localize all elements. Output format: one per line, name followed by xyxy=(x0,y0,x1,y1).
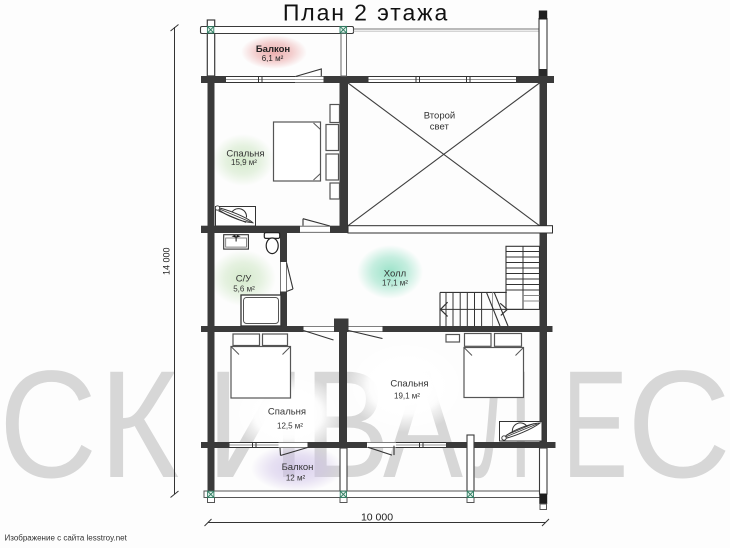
svg-text:17,1 м²: 17,1 м² xyxy=(382,279,408,288)
svg-text:15,9 м²: 15,9 м² xyxy=(231,158,257,167)
svg-text:Второй: Второй xyxy=(424,111,455,122)
svg-text:Е: Е xyxy=(562,339,628,510)
svg-text:С: С xyxy=(0,339,97,510)
svg-text:Спальня: Спальня xyxy=(390,379,428,390)
svg-text:12 м²: 12 м² xyxy=(286,474,306,483)
svg-text:6,1 м²: 6,1 м² xyxy=(262,54,284,63)
svg-text:10 000: 10 000 xyxy=(361,512,393,524)
svg-text:План 2 этажа: План 2 этажа xyxy=(283,0,449,26)
svg-text:С: С xyxy=(627,339,730,510)
svg-text:12,5 м²: 12,5 м² xyxy=(277,422,303,431)
svg-text:19,1 м²: 19,1 м² xyxy=(394,392,420,401)
svg-text:Балкон: Балкон xyxy=(282,462,314,473)
svg-text:свет: свет xyxy=(430,122,450,133)
svg-text:К: К xyxy=(99,339,179,510)
svg-text:Изображение с сайта lesstroy.n: Изображение с сайта lesstroy.net xyxy=(5,534,128,543)
svg-text:С/У: С/У xyxy=(236,274,253,285)
svg-text:Спальня: Спальня xyxy=(268,407,306,418)
svg-text:14 000: 14 000 xyxy=(162,247,172,275)
svg-text:5,6 м²: 5,6 м² xyxy=(233,285,255,294)
